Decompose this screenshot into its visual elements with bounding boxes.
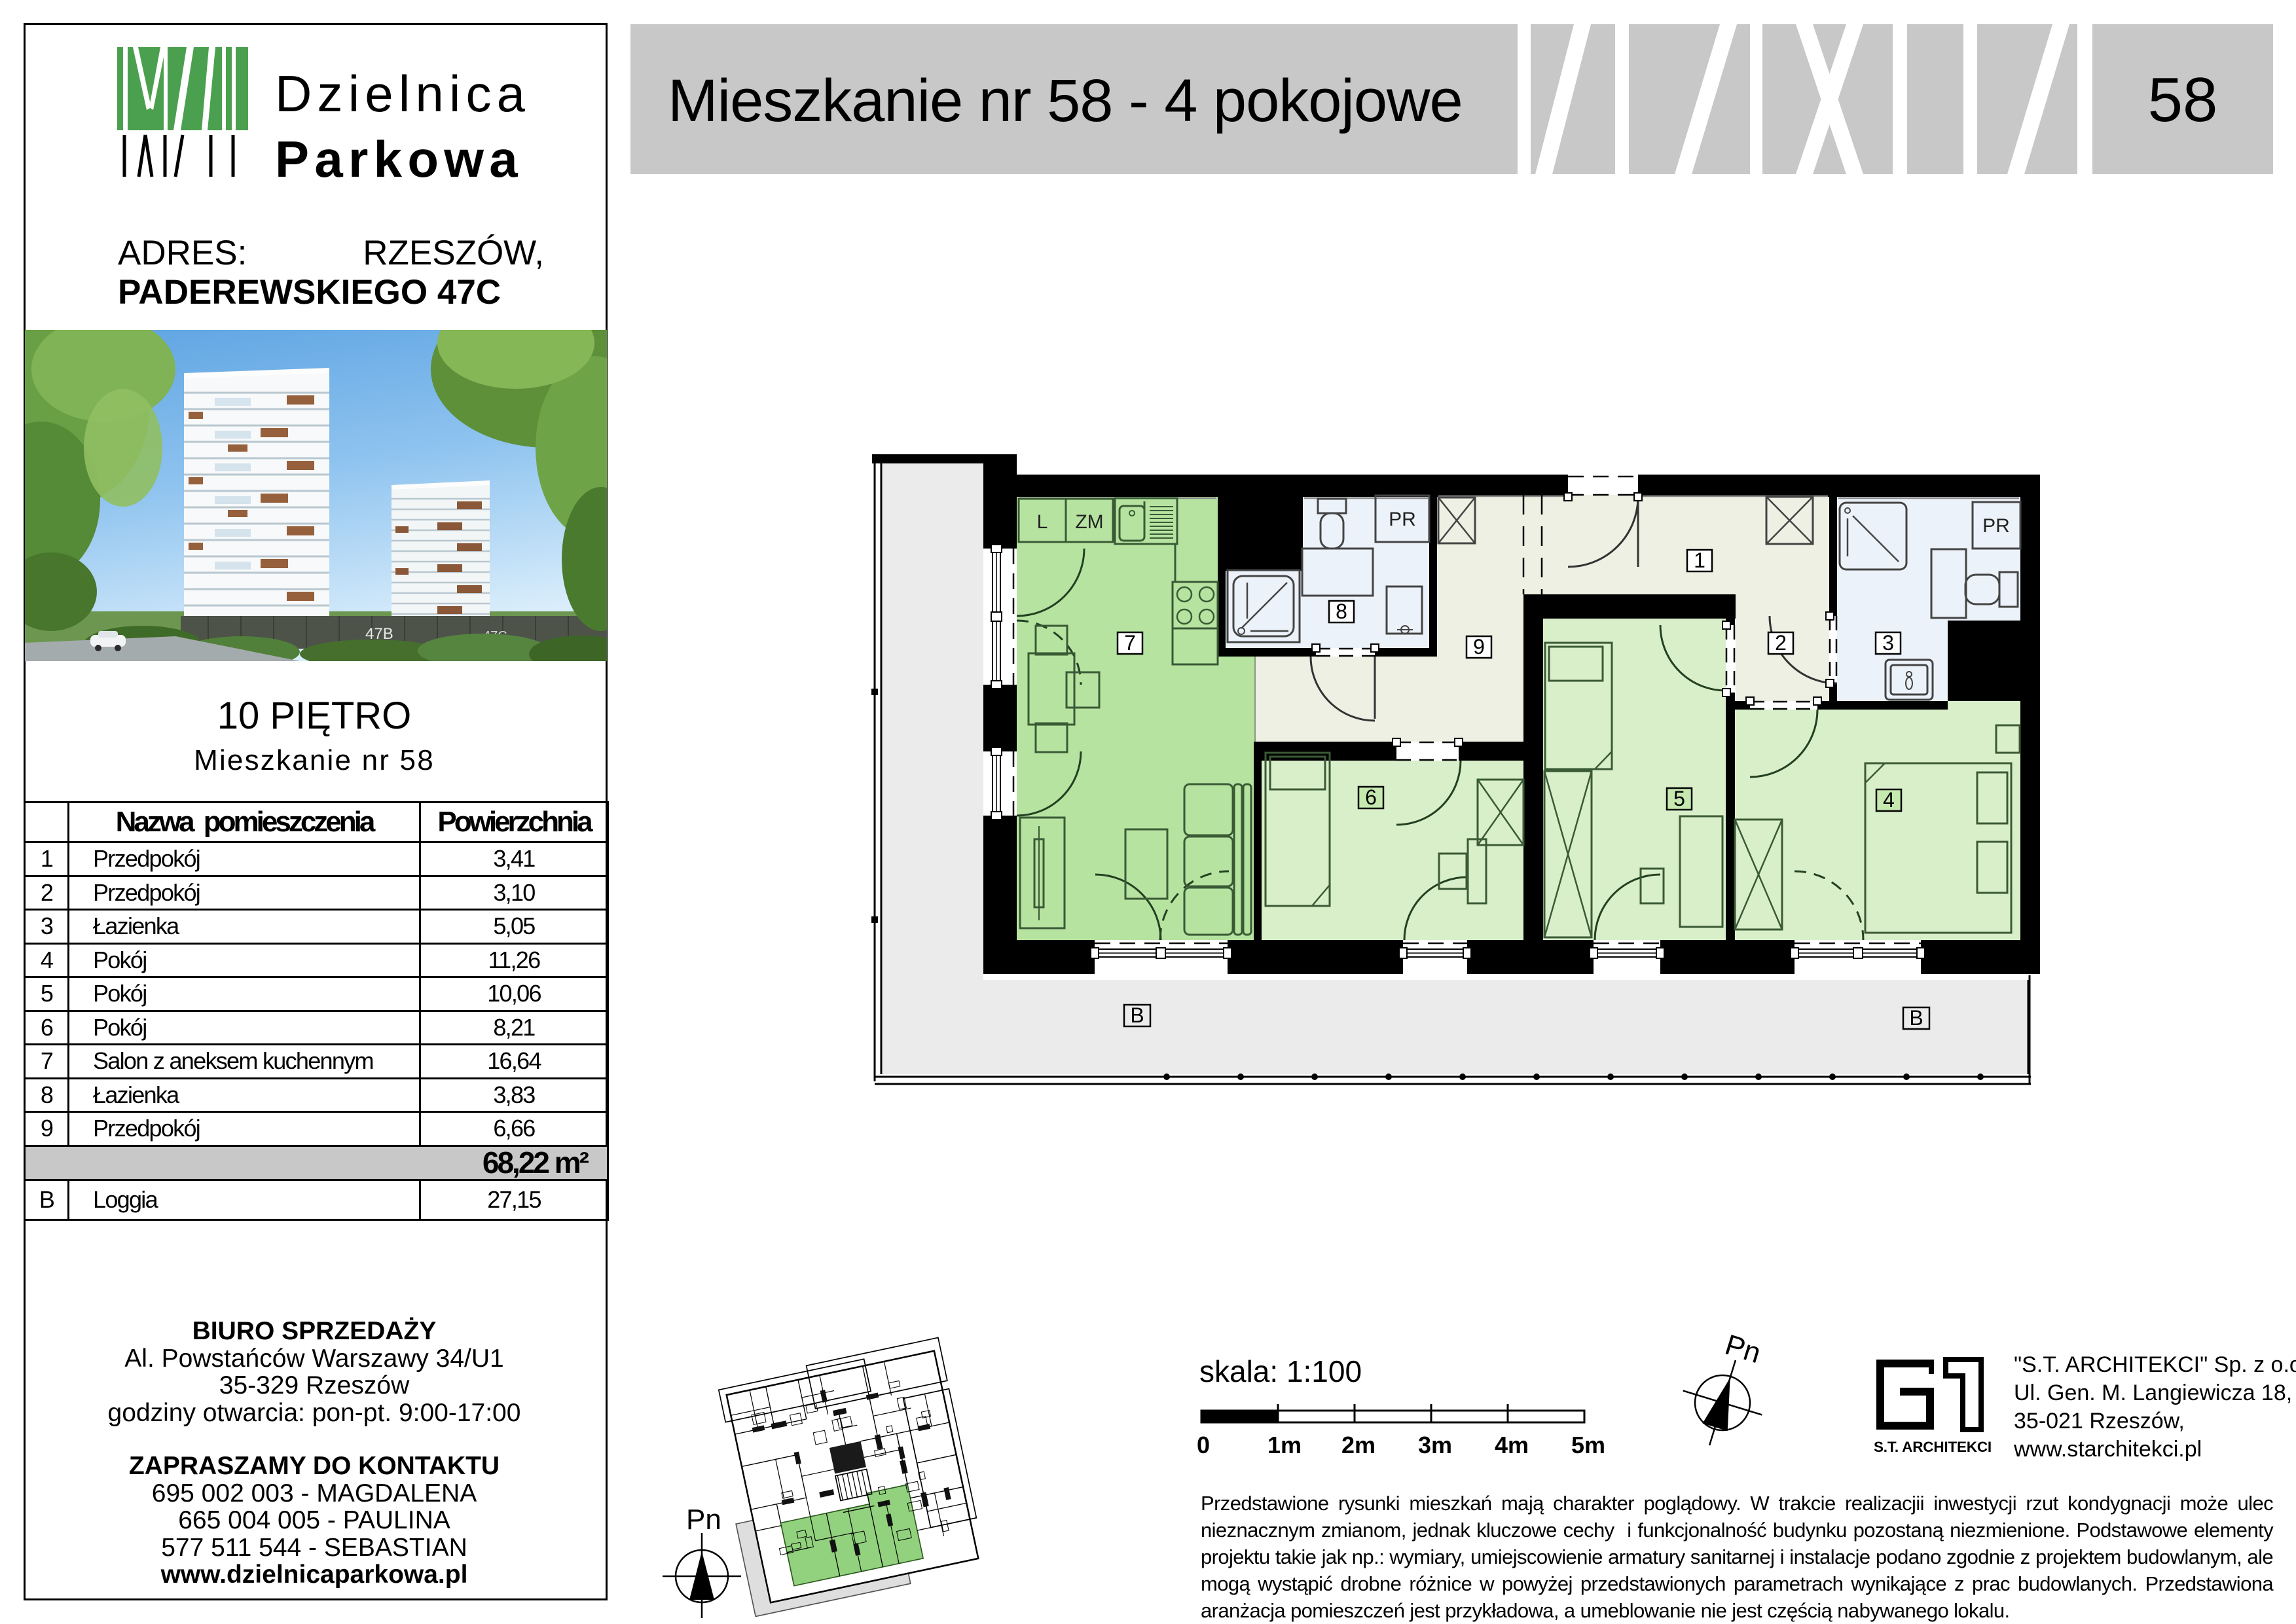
svg-text:5: 5 [1673,787,1685,810]
svg-text:0: 0 [1197,1432,1210,1458]
svg-text:ZM: ZM [1075,511,1103,533]
svg-text:Pn: Pn [686,1504,721,1536]
svg-text:7: 7 [1124,631,1136,655]
svg-text:4: 4 [1883,788,1895,812]
svg-text:2m: 2m [1341,1432,1376,1458]
svg-text:9: 9 [1473,635,1485,659]
svg-text:58: 58 [2148,65,2218,135]
svg-text:3m: 3m [1418,1432,1452,1458]
svg-text:S.T. ARCHITEKCI: S.T. ARCHITEKCI [1874,1439,1992,1455]
svg-text:PR: PR [1982,515,2010,537]
svg-text:1: 1 [1694,549,1705,572]
svg-text:2: 2 [1775,631,1787,655]
svg-text:B: B [1909,1006,1923,1030]
svg-text:L: L [1037,511,1048,533]
svg-text:4m: 4m [1495,1432,1529,1458]
svg-text:1m: 1m [1267,1432,1302,1458]
svg-text:5m: 5m [1571,1432,1605,1458]
svg-text:PR: PR [1389,509,1416,530]
svg-text:Pn: Pn [1721,1329,1764,1369]
svg-text:8: 8 [1336,600,1347,623]
svg-text:3: 3 [1882,631,1894,655]
svg-text:B: B [1130,1003,1144,1027]
svg-text:6: 6 [1365,785,1377,809]
